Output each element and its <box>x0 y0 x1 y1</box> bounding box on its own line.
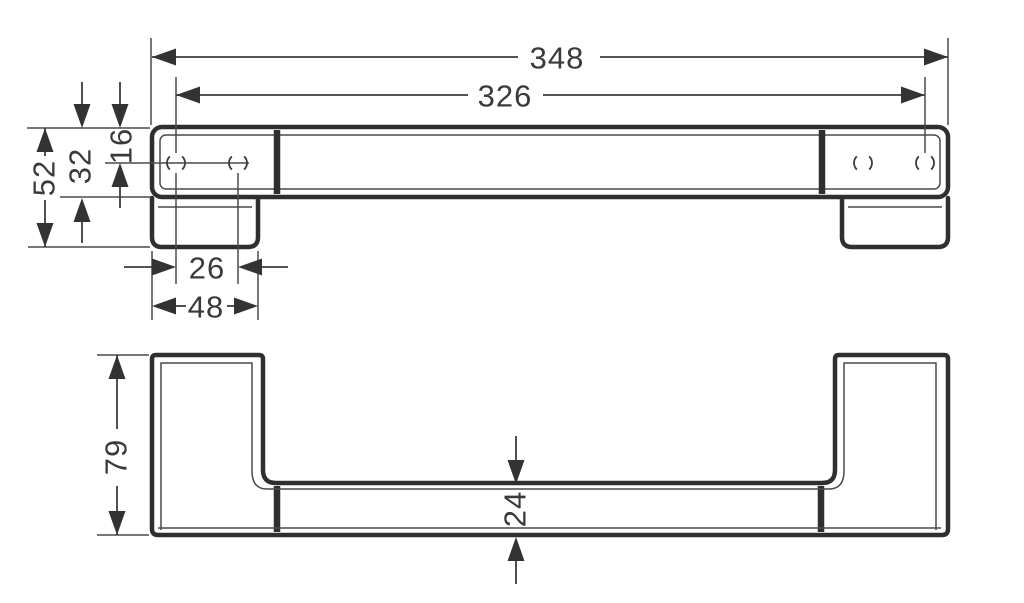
dim-hole-pitch: 26 <box>124 251 288 286</box>
arrowhead-down <box>112 104 129 128</box>
arrowhead-down <box>508 460 525 484</box>
dim-overall-width-label: 348 <box>530 41 585 76</box>
dim-hole-pitch-label: 26 <box>189 251 225 286</box>
front-view: 348 326 52 32 <box>27 38 949 325</box>
arrowhead-up <box>112 163 129 187</box>
dim-bar-height: 32 <box>63 82 98 243</box>
arrowhead-up <box>109 355 126 379</box>
dim-end-height-label: 52 <box>27 160 62 196</box>
arrowhead-left <box>152 49 176 66</box>
arrowhead-left <box>152 298 176 315</box>
dim-overall-depth-label: 79 <box>99 439 134 475</box>
dim-overall-depth: 79 <box>99 355 134 535</box>
screw-hole <box>854 154 872 172</box>
arrowhead-up <box>508 537 525 561</box>
arrowhead-up <box>74 198 91 222</box>
right-foot-outline <box>842 198 948 247</box>
arrowhead-down <box>74 104 91 128</box>
arrowhead-up <box>37 128 54 152</box>
side-view: 79 24 <box>97 355 948 584</box>
arrowhead-right <box>924 49 948 66</box>
dim-overall-width: 348 <box>152 41 948 76</box>
dim-hole-span-label: 326 <box>478 79 533 114</box>
dim-bar-thickness: 24 <box>498 436 533 584</box>
bar-outline <box>152 127 948 197</box>
left-foot-outline <box>152 198 258 247</box>
dim-hole-offset-label: 16 <box>104 128 139 164</box>
arrowhead-right <box>152 259 176 276</box>
dim-hole-span: 326 <box>176 79 925 114</box>
arrowhead-down <box>37 223 54 247</box>
side-profile-outline <box>152 355 948 535</box>
arrowhead-left <box>176 87 200 104</box>
arrowhead-down <box>109 511 126 535</box>
screw-hole <box>916 154 934 172</box>
technical-drawing: 348 326 52 32 <box>0 0 1024 603</box>
dim-end-height: 52 <box>27 128 62 247</box>
arrowhead-right <box>901 87 925 104</box>
technical-drawing-page: 348 326 52 32 <box>0 0 1024 603</box>
dim-plate-width-label: 48 <box>188 290 224 325</box>
dim-bar-height-label: 32 <box>63 148 98 184</box>
arrowhead-left <box>238 259 262 276</box>
arrowhead-right <box>234 298 258 315</box>
dim-plate-width: 48 <box>152 290 258 325</box>
dim-bar-thickness-label: 24 <box>498 491 533 527</box>
dim-hole-offset: 16 <box>104 82 139 208</box>
